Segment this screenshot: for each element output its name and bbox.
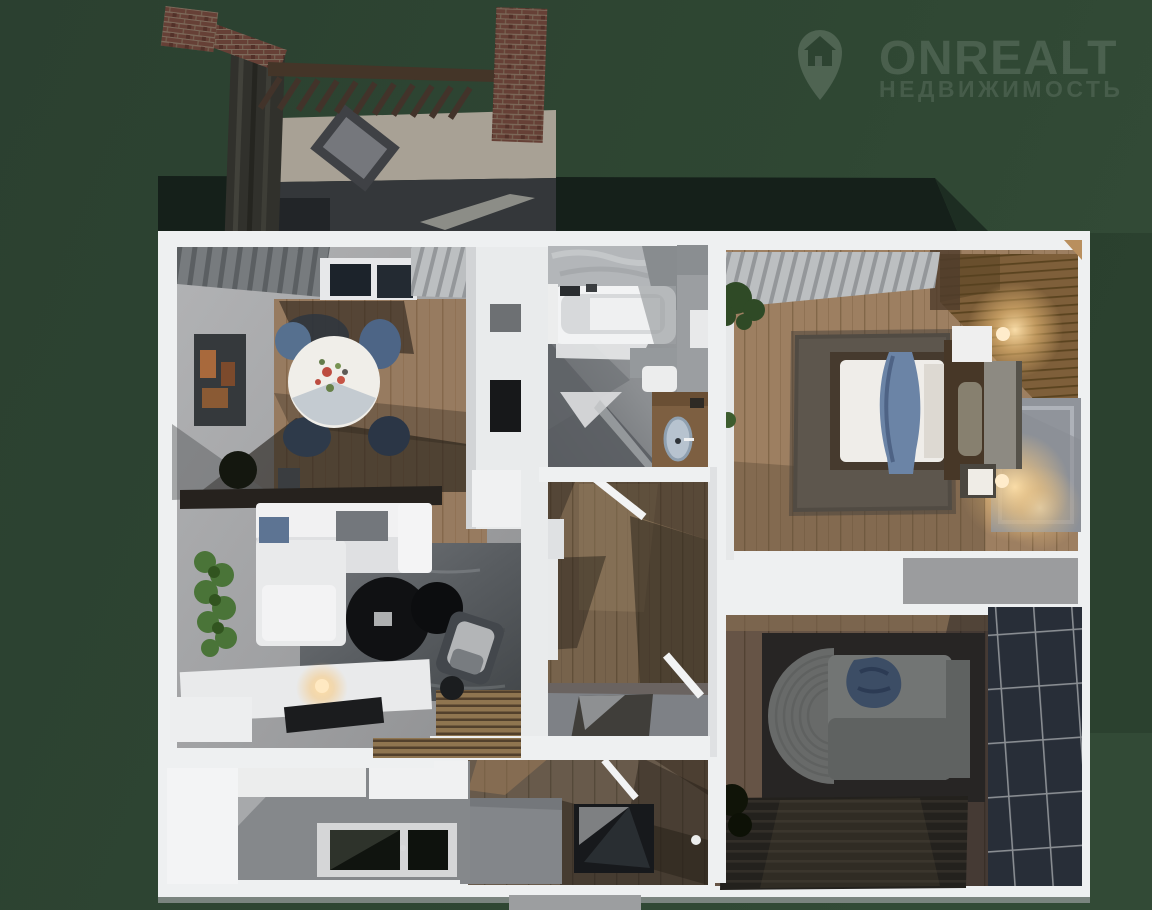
svg-text:НЕДВИЖИМОСТЬ: НЕДВИЖИМОСТЬ xyxy=(879,76,1123,102)
